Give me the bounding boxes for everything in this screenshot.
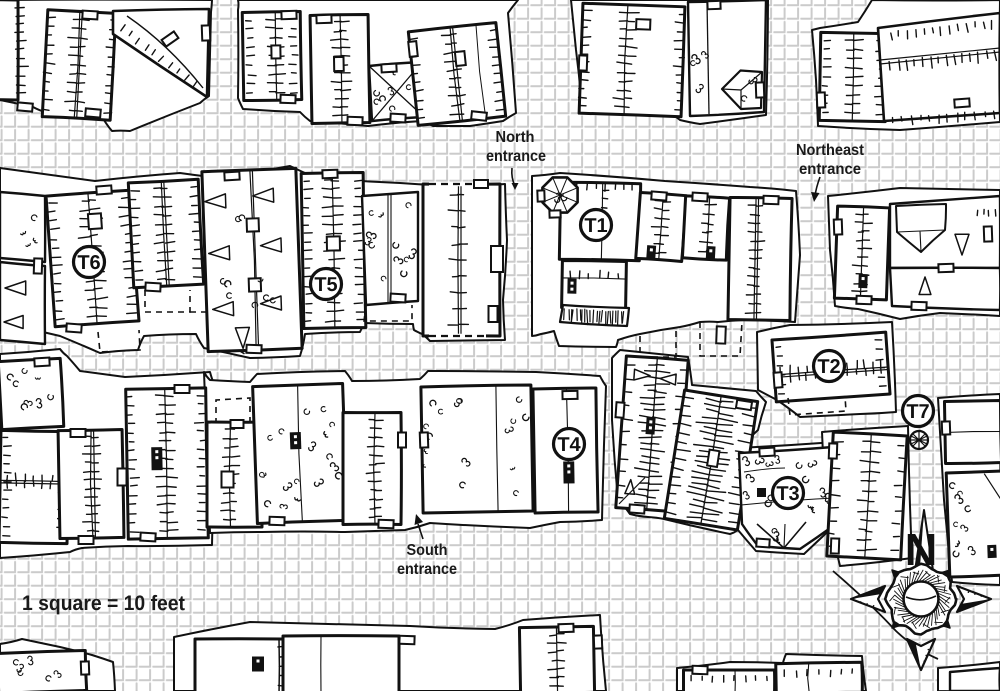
svg-text:North: North xyxy=(496,129,535,146)
svg-text:T2: T2 xyxy=(817,356,840,378)
svg-text:N: N xyxy=(905,524,938,575)
svg-text:Northeast: Northeast xyxy=(796,142,865,159)
svg-text:T3: T3 xyxy=(776,483,799,505)
svg-text:T4: T4 xyxy=(557,434,581,456)
svg-text:T7: T7 xyxy=(906,401,929,423)
svg-text:T6: T6 xyxy=(77,252,100,274)
svg-text:entrance: entrance xyxy=(397,561,457,578)
svg-text:entrance: entrance xyxy=(486,148,546,165)
svg-text:entrance: entrance xyxy=(799,161,861,178)
svg-text:1 square = 10 feet: 1 square = 10 feet xyxy=(22,592,185,615)
svg-text:T5: T5 xyxy=(314,274,337,296)
svg-text:T1: T1 xyxy=(584,215,607,237)
svg-text:South: South xyxy=(407,542,448,559)
